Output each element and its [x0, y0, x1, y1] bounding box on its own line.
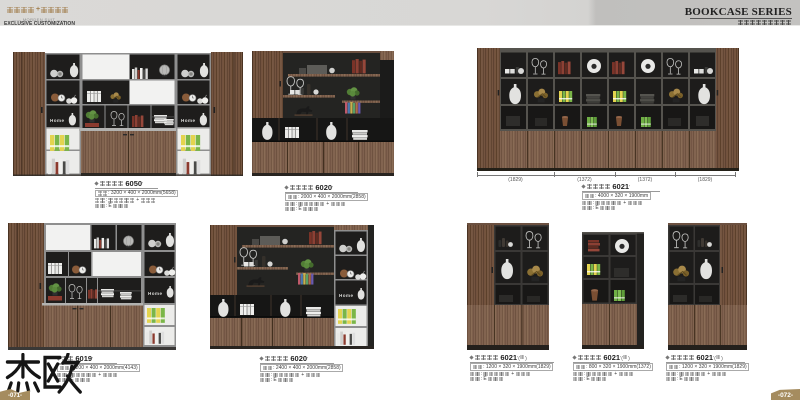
svg-text:Home: Home [339, 293, 354, 298]
svg-text:Home: Home [148, 291, 163, 296]
svg-text:Home: Home [50, 118, 65, 123]
svg-text:Home: Home [181, 118, 196, 123]
